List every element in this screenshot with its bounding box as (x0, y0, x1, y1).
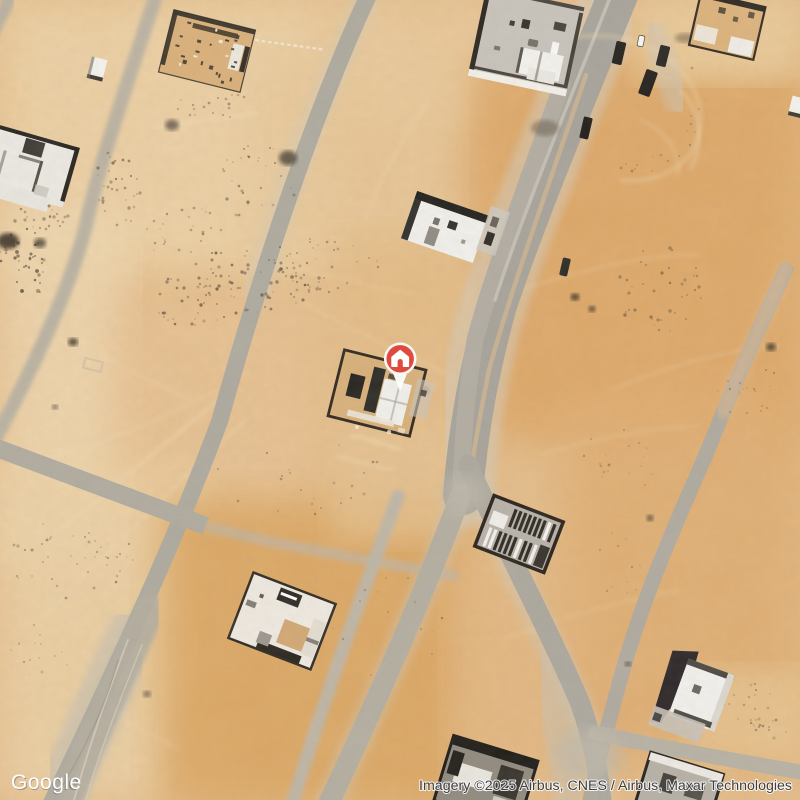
svg-text:Google: Google (11, 771, 82, 794)
svg-text:Imagery ©2025 Airbus, CNES / A: Imagery ©2025 Airbus, CNES / Airbus, Max… (419, 778, 792, 794)
